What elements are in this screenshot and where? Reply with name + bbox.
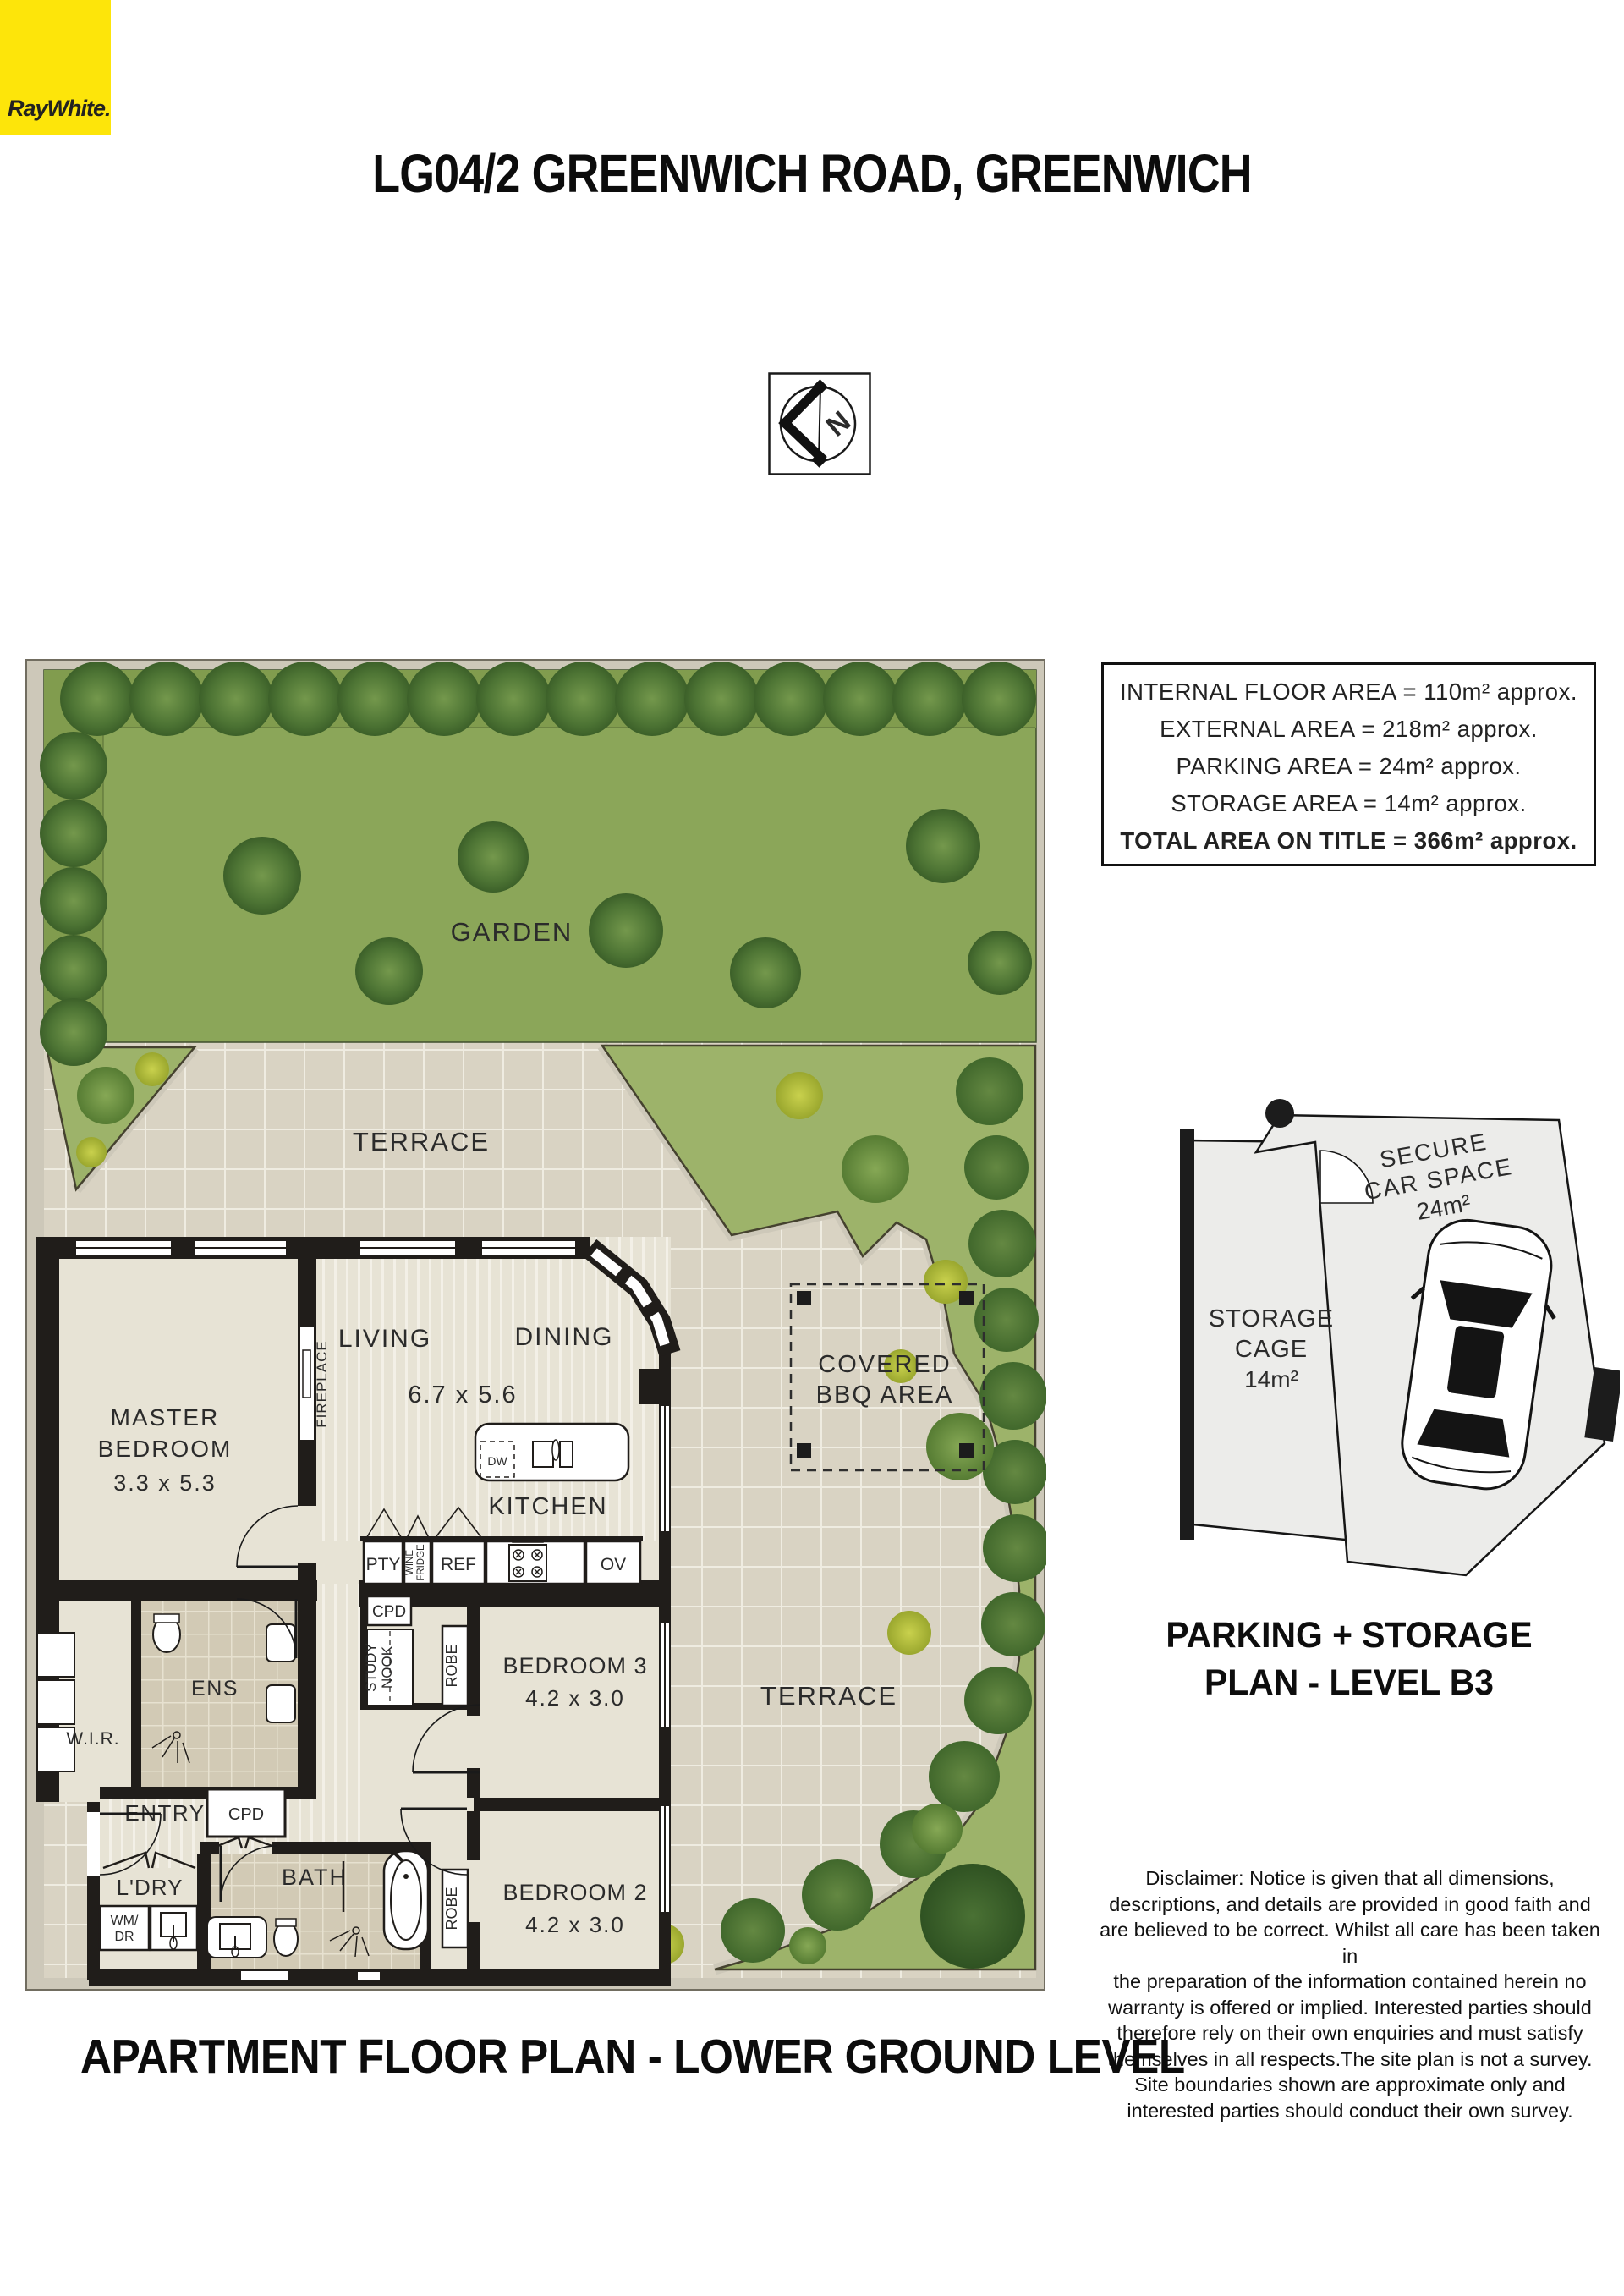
floor-plan-caption: APARTMENT FLOOR PLAN - LOWER GROUND LEVE…	[80, 2029, 1185, 2085]
area-line-storage: STORAGE AREA = 14m² approx.	[1104, 785, 1594, 822]
terrace-upper-label: TERRACE	[353, 1127, 490, 1156]
area-line-external: EXTERNAL AREA = 218m² approx.	[1104, 711, 1594, 748]
wm-dr-label-1: WM/	[111, 1914, 139, 1928]
wine-fridge-label-1: WINE	[405, 1550, 415, 1575]
bed3-label: BEDROOM 3	[502, 1653, 647, 1678]
storage-label-2: CAGE	[1235, 1336, 1308, 1363]
fireplace: FIREPLACE	[299, 1327, 330, 1441]
storage-label-3: 14m²	[1244, 1366, 1298, 1392]
ens-label: ENS	[191, 1677, 239, 1700]
bbq-label-line2: BBQ AREA	[816, 1381, 954, 1409]
flyer-page: RayWhite. LG04/2 GREENWICH ROAD, GREENWI…	[0, 0, 1624, 2296]
page-title: LG04/2 GREENWICH ROAD, GREENWICH	[130, 142, 1495, 205]
disclaimer-text: Disclaimer: Notice is given that all dim…	[1096, 1865, 1604, 2123]
ldry-label: L'DRY	[117, 1875, 184, 1900]
site-plan-drawing: GARDEN TERRACE TERRACE COVERED BBQ AREA	[25, 651, 1046, 1997]
raywhite-logo: RayWhite.	[0, 0, 111, 135]
master-label-1: MASTER	[111, 1404, 220, 1431]
site-plan: GARDEN TERRACE TERRACE COVERED BBQ AREA	[25, 651, 1046, 1997]
oven-label: OV	[601, 1555, 626, 1574]
raywhite-logo-text: RayWhite.	[8, 96, 111, 122]
bed2-label: BEDROOM 2	[502, 1880, 647, 1905]
living-label: LIVING	[338, 1325, 431, 1353]
dishwasher-label: DW	[487, 1454, 507, 1468]
area-summary-box: INTERNAL FLOOR AREA = 110m² approx. EXTE…	[1101, 662, 1596, 866]
parking-plan-heading: PARKING + STORAGE PLAN - LEVEL B3	[1112, 1612, 1587, 1706]
compass: N	[768, 372, 871, 475]
area-line-internal: INTERNAL FLOOR AREA = 110m² approx.	[1104, 673, 1594, 711]
parking-storage-plan: SECURE CAR SPACE 24m² STORAGE CAGE 14m²	[1180, 1074, 1620, 1616]
apartment: FIREPLACE DW	[36, 1237, 671, 1986]
column-dot	[1265, 1099, 1294, 1128]
garden: GARDEN	[40, 662, 1036, 1066]
master-label-2: BEDROOM	[98, 1436, 233, 1462]
robe-bed3-label: ROBE	[443, 1644, 460, 1687]
cpd-kitchen-label: CPD	[372, 1603, 406, 1621]
dining-label: DINING	[515, 1323, 614, 1351]
study-nook-label-1: STUDY	[363, 1643, 379, 1692]
area-line-total: TOTAL AREA ON TITLE = 366m² approx.	[1104, 822, 1594, 860]
north-arrow-icon: N	[768, 372, 871, 475]
terrace-lower-label: TERRACE	[760, 1681, 897, 1711]
study-nook-label-2: NOOK	[379, 1645, 395, 1689]
cpd-entry-label: CPD	[228, 1805, 264, 1824]
master-dims: 3.3 x 5.3	[113, 1470, 217, 1496]
garden-label: GARDEN	[451, 917, 573, 947]
kitchen-label: KITCHEN	[488, 1493, 607, 1520]
pantry-label: PTY	[366, 1555, 401, 1574]
wm-dr-label-2: DR	[114, 1930, 134, 1944]
storage-label-1: STORAGE	[1209, 1305, 1334, 1332]
bed2-dims: 4.2 x 3.0	[525, 1912, 625, 1937]
fireplace-label: FIREPLACE	[314, 1340, 330, 1427]
living-dims: 6.7 x 5.6	[408, 1381, 517, 1409]
fridge-label: REF	[441, 1555, 476, 1574]
parking-drawing: SECURE CAR SPACE 24m² STORAGE CAGE 14m²	[1180, 1074, 1620, 1616]
kitchen-island: DW	[475, 1424, 628, 1480]
robe-bed2-label: ROBE	[443, 1887, 460, 1930]
area-line-parking: PARKING AREA = 24m² approx.	[1104, 748, 1594, 785]
bbq-label-line1: COVERED	[818, 1351, 951, 1378]
bath-label: BATH	[282, 1865, 348, 1890]
wine-fridge-label-2: FRIDGE	[416, 1544, 426, 1581]
wir-label: W.I.R.	[66, 1729, 119, 1749]
bed3-dims: 4.2 x 3.0	[525, 1685, 625, 1711]
